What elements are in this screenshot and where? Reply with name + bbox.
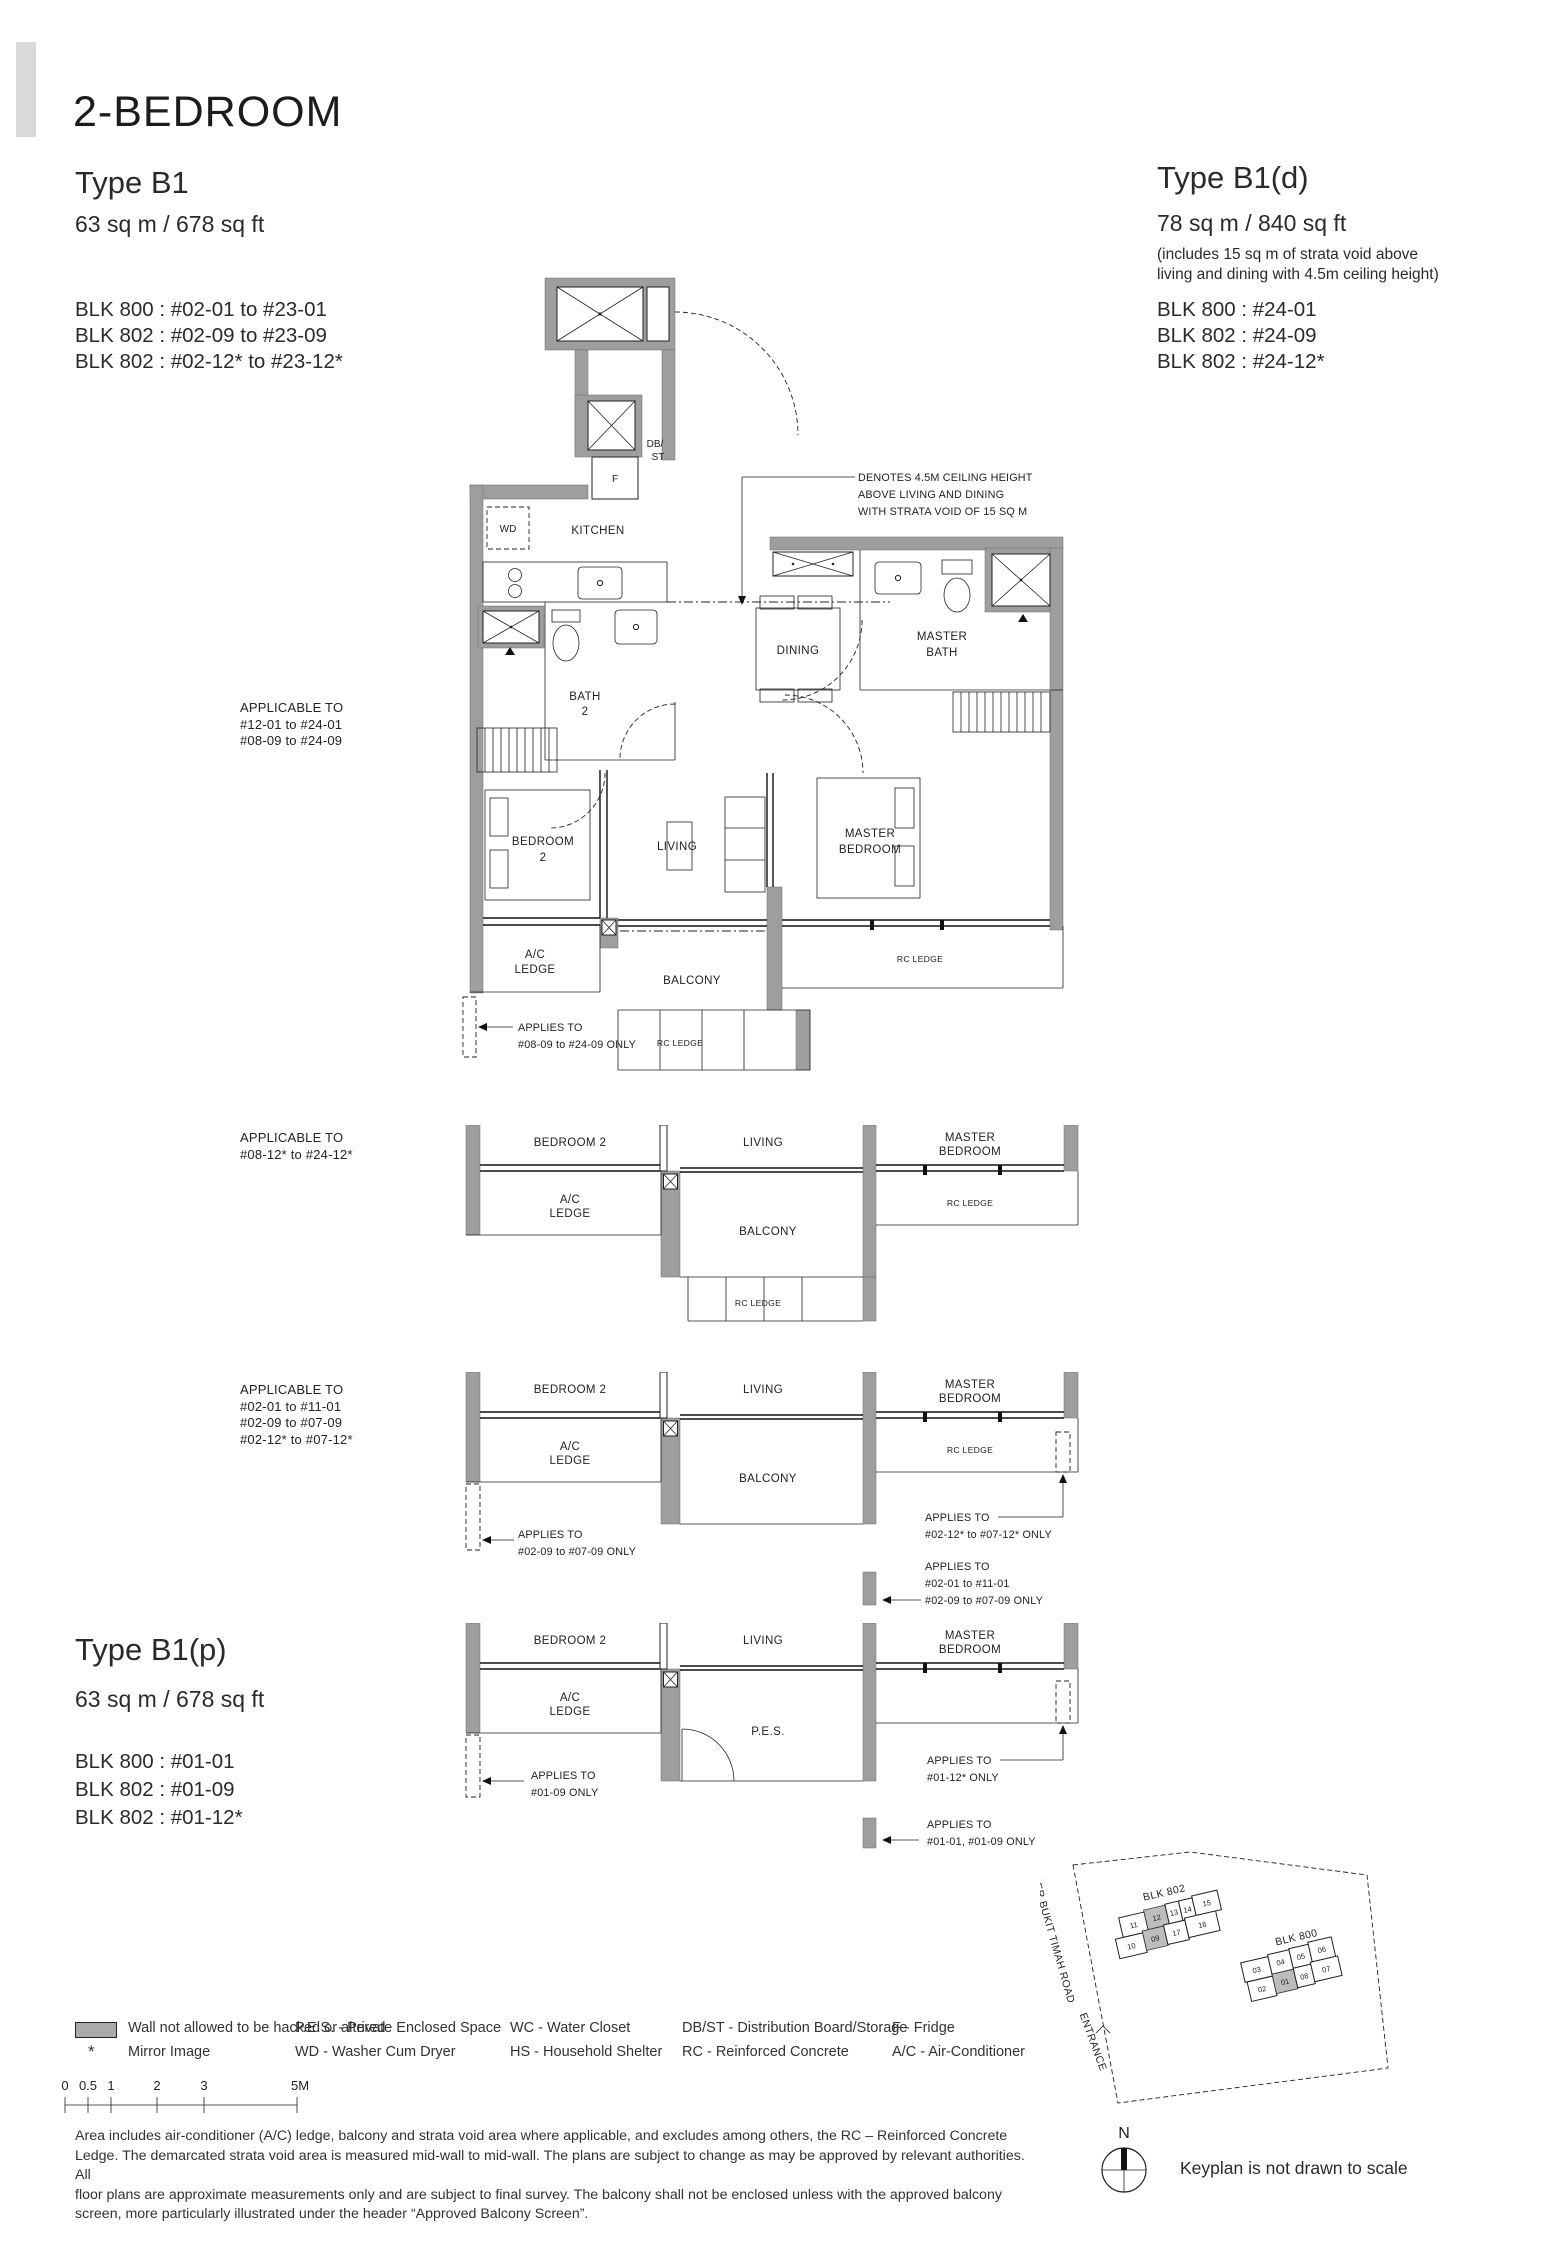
ac-ledge-label: LEDGE [550,1455,591,1467]
balcony-label: BALCONY [739,1226,797,1238]
type-b1d-heading: Type B1(d) [1157,160,1309,196]
fixtures-layer [477,457,1063,900]
bedroom2-label: 2 [540,852,547,864]
scale-bar: 0 0.5 1 2 3 5M [60,2078,320,2120]
master-label: MASTER [845,828,895,840]
ac-ledge-label: LEDGE [550,1706,591,1718]
ac-ledge-label: A/C [560,1194,580,1206]
master-label: BEDROOM [839,844,901,856]
legend-item: RC - Reinforced Concrete [682,2044,849,2060]
ceiling-note: ABOVE LIVING AND DINING [858,489,1004,501]
balcony-label: BALCONY [739,1473,797,1485]
type-b1p-area: 63 sq m / 678 sq ft [75,1686,264,1713]
blk-802-footprint: BLK 802 11 12 13 14 15 10 09 17 16 [1106,1875,1227,1958]
mirror-variant-box [466,1735,480,1797]
room-labels: BEDROOM 2 LIVING MASTER BEDROOM A/C LEDG… [534,1379,1001,1485]
blk-800-footprint: BLK 800 03 04 05 06 02 01 08 07 [1237,1924,1344,2002]
page-title: 2-BEDROOM [73,88,342,137]
ceiling-note: WITH STRATA VOID OF 15 SQ M [858,506,1027,518]
balcony-label: BALCONY [663,975,721,987]
applies-note: APPLIES TO [925,1561,990,1573]
scale-tick-label: 3 [200,2078,207,2093]
applies-note: #01-01, #01-09 ONLY [927,1836,1036,1848]
partial-plan-4: BEDROOM 2 LIVING MASTER BEDROOM A/C LEDG… [458,1623,1098,1868]
rc-ledge-label: RC LEDGE [947,1445,993,1455]
compass-icon: N [1094,2120,1158,2204]
site-boundary [1073,1852,1388,2103]
room-labels: DB/ ST F WD KITCHEN BATH 2 DINING MASTER… [500,439,968,1048]
bedroom2-label: BEDROOM 2 [534,1137,607,1149]
applies-note: #02-12* to #07-12* ONLY [925,1529,1052,1541]
ac-ledge-label: LEDGE [550,1208,591,1220]
applies-note: #02-09 to #07-09 ONLY [925,1595,1043,1607]
mirror-symbol: * [88,2042,95,2062]
type-b1d-blocks: BLK 800 : #24-01 BLK 802 : #24-09 BLK 80… [1157,297,1325,375]
wardrobe [953,692,1050,732]
legend-item: WD - Washer Cum Dryer [295,2044,456,2060]
kitchen-label: KITCHEN [571,525,624,537]
bath2-label: 2 [582,706,589,718]
block-range: BLK 802 : #01-09 [75,1776,243,1804]
master-door-swing [785,695,863,773]
block-range: BLK 800 : #24-01 [1157,297,1325,323]
toilet [553,625,579,661]
applies-note: APPLIES TO [531,1770,596,1782]
block-range: BLK 802 : #24-12* [1157,349,1325,375]
master-label: MASTER [945,1132,995,1144]
bedroom2-label: BEDROOM 2 [534,1384,607,1396]
entrance-label: ENTRANCE [1077,2011,1109,2072]
ac-ledge-label: A/C [560,1692,580,1704]
mirror-variant-box [1056,1432,1070,1472]
masterbath-door-swing [782,620,862,700]
keyplan: UPPER BUKIT TIMAH ROAD ENTRANCE BLK 802 … [1040,1845,1553,2110]
type-b1d-area: 78 sq m / 840 sq ft [1157,210,1346,237]
applies-note: APPLIES TO [518,1529,583,1541]
bath2-door-swing [620,704,675,758]
master-label: MASTER [945,1379,995,1391]
dining-label: DINING [777,645,820,657]
applies-note: APPLIES TO [927,1819,992,1831]
applies-note: #02-01 to #11-01 [925,1578,1010,1590]
bath2-label: BATH [569,691,600,703]
mirror-variant-box [1056,1681,1070,1723]
walls-layer [470,278,1063,1070]
master-label: BEDROOM [939,1644,1001,1656]
type-b1d-area-note: (includes 15 sq m of strata void above l… [1157,245,1439,285]
applies-note: APPLIES TO [927,1755,992,1767]
scale-tick-label: 0.5 [79,2078,97,2093]
corner-strip [16,42,36,137]
ac-ledge-label: A/C [525,949,545,961]
plan1-applicable: APPLICABLE TO #12-01 to #24-01 #08-09 to… [240,700,343,750]
rc-ledge-label: RC LEDGE [657,1038,703,1048]
legend-mirror: Mirror Image [128,2044,210,2060]
type-b1-blocks: BLK 800 : #02-01 to #23-01 BLK 802 : #02… [75,297,343,375]
applies-note: #08-09 to #24-09 ONLY [518,1039,636,1051]
bedroom2-door-swing [550,773,605,828]
legend-item: WC - Water Closet [510,2020,630,2036]
master-label: BEDROOM [939,1146,1001,1158]
plan2-applicable: APPLICABLE TO #08-12* to #24-12* [240,1130,353,1163]
applies-note: #01-09 ONLY [531,1787,598,1799]
dbst-label: DB/ [647,439,664,450]
ac-ledge-label: LEDGE [515,964,556,976]
applies-note: #02-09 to #07-09 ONLY [518,1546,636,1558]
road-label: UPPER BUKIT TIMAH ROAD [1040,1860,1077,2005]
dbst-label: ST [652,452,665,463]
legend-item: A/C - Air-Conditioner [892,2044,1025,2060]
disclaimer: Area includes air-conditioner (A/C) ledg… [75,2127,1035,2225]
master-label: BEDROOM [939,1393,1001,1405]
living-label: LIVING [743,1384,783,1396]
bath2-walls [545,602,675,760]
annotations: APPLIES TO #02-09 to #07-09 ONLY APPLIES… [518,1512,1052,1607]
toilet [944,578,970,612]
plan3-applicable: APPLICABLE TO #02-01 to #11-01 #02-09 to… [240,1382,353,1448]
ceiling-note: DENOTES 4.5M CEILING HEIGHT [858,472,1033,484]
masterbath-label: MASTER [917,631,967,643]
wall-swatch [75,2022,117,2038]
pes-door-swing [682,1729,734,1781]
block-range: BLK 802 : #01-12* [75,1804,243,1832]
legend-item: P.E.S. - Private Enclosed Space [295,2020,501,2036]
bedroom2-label: BEDROOM 2 [534,1635,607,1647]
bedroom2-label: BEDROOM [512,836,574,848]
type-b1p-heading: Type B1(p) [75,1632,227,1668]
block-range: BLK 802 : #02-09 to #23-09 [75,323,343,349]
keyplan-note: Keyplan is not drawn to scale [1180,2158,1408,2179]
partial-plan-2: BEDROOM 2 LIVING MASTER BEDROOM A/C LEDG… [458,1125,1098,1370]
masterbath-label: BATH [926,647,957,659]
type-b1p-blocks: BLK 800 : #01-01 BLK 802 : #01-09 BLK 80… [75,1748,243,1832]
applies-note: APPLIES TO [518,1022,583,1034]
living-label: LIVING [743,1137,783,1149]
north-label: N [1118,2125,1130,2142]
entrance-arrow [1096,2026,1110,2033]
entry-door-swing [675,312,798,435]
mirror-variant-box [466,1484,480,1550]
main-floorplan: DB/ ST F WD KITCHEN BATH 2 DINING MASTER… [330,270,1070,1085]
pes-label: P.E.S. [751,1726,785,1738]
applies-note: #01-12* ONLY [927,1772,999,1784]
room-labels: BEDROOM 2 LIVING MASTER BEDROOM A/C LEDG… [534,1630,1001,1738]
living-label: LIVING [657,841,697,853]
type-b1-area: 63 sq m / 678 sq ft [75,211,264,238]
master-label: MASTER [945,1630,995,1642]
block-range: BLK 802 : #02-12* to #23-12* [75,349,343,375]
rc-ledge-label: RC LEDGE [735,1298,781,1308]
type-b1-heading: Type B1 [75,165,189,201]
block-range: BLK 800 : #02-01 to #23-01 [75,297,343,323]
wd-label: WD [500,524,517,535]
partial-plan-3: BEDROOM 2 LIVING MASTER BEDROOM A/C LEDG… [458,1372,1098,1617]
scale-tick-label: 0 [61,2078,68,2093]
rc-ledge-label: RC LEDGE [897,954,943,964]
scale-tick-label: 5M [291,2078,309,2093]
rc-ledge-label: RC LEDGE [947,1198,993,1208]
legend-item: F - Fridge [892,2020,955,2036]
mirror-variant-box [463,997,476,1057]
partition-lines [463,312,1063,1070]
applies-note: APPLIES TO [925,1512,990,1524]
annotations: APPLIES TO #01-09 ONLY APPLIES TO #01-12… [531,1755,1036,1848]
legend-item: DB/ST - Distribution Board/Storage [682,2020,907,2036]
block-range: BLK 800 : #01-01 [75,1748,243,1776]
living-label: LIVING [743,1635,783,1647]
legend-item: HS - Household Shelter [510,2044,662,2060]
floorplan-page: 2-BEDROOM Type B1 63 sq m / 678 sq ft BL… [0,0,1553,2253]
marker-triangle [1018,614,1028,622]
room-labels: BEDROOM 2 LIVING MASTER BEDROOM A/C LEDG… [534,1132,1001,1308]
scale-tick-label: 2 [153,2078,160,2093]
ac-ledge-label: A/C [560,1441,580,1453]
fridge-label: F [612,474,618,485]
block-range: BLK 802 : #24-09 [1157,323,1325,349]
scale-tick-label: 1 [107,2078,114,2093]
sofa [725,797,765,892]
